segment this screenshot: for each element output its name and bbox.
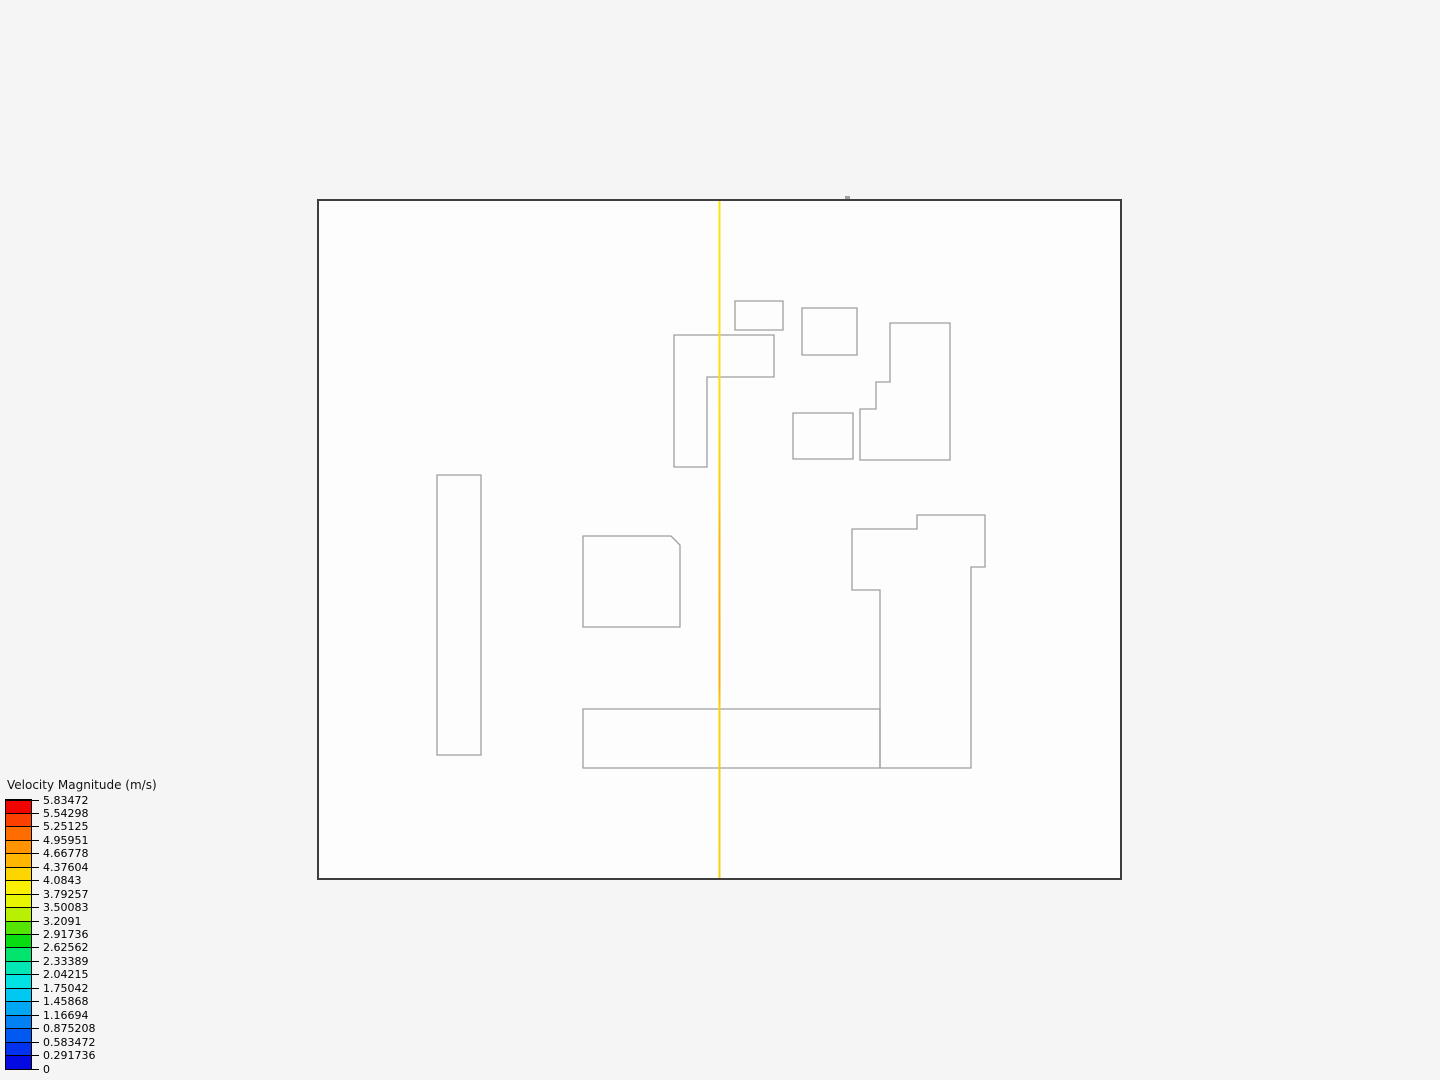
legend-tick-label: 1.45868: [43, 995, 89, 1008]
legend-tick-label: 5.25125: [43, 820, 89, 833]
legend-tick-label: 2.04215: [43, 968, 89, 981]
legend-tick-label: 4.37604: [43, 861, 89, 874]
legend-tick-mark: [6, 1001, 39, 1002]
legend-tick-mark: [6, 974, 39, 975]
legend-tick-label: 0: [43, 1063, 50, 1076]
legend-tick-label: 3.79257: [43, 888, 89, 901]
legend-tick-label: 4.95951: [43, 834, 89, 847]
legend-tick-mark: [6, 813, 39, 814]
legend-tick-label: 0.583472: [43, 1036, 96, 1049]
legend-tick-mark: [6, 1028, 39, 1029]
top-edge-notch: [845, 196, 850, 199]
legend-tick-label: 2.62562: [43, 941, 89, 954]
legend-tick-label: 5.54298: [43, 807, 89, 820]
legend-tick-label: 2.33389: [43, 955, 89, 968]
legend-tick-label: 4.0843: [43, 874, 82, 887]
legend-tick-mark: [6, 907, 39, 908]
scene-canvas[interactable]: [0, 0, 1440, 1080]
legend-tick-mark: [6, 880, 39, 881]
legend-tick-label: 1.16694: [43, 1009, 89, 1022]
legend-ticks: 5.834725.542985.251254.959514.667784.376…: [6, 800, 166, 1070]
legend-tick-mark: [6, 853, 39, 854]
legend-tick-label: 1.75042: [43, 982, 89, 995]
legend-tick-mark: [6, 988, 39, 989]
legend-title: Velocity Magnitude (m/s): [7, 778, 157, 792]
legend-tick-label: 0.875208: [43, 1022, 96, 1035]
legend-tick-label: 3.50083: [43, 901, 89, 914]
legend-tick-mark: [6, 1055, 39, 1056]
legend-tick-mark: [6, 921, 39, 922]
legend-tick-label: 5.83472: [43, 794, 89, 807]
legend-tick-label: 2.91736: [43, 928, 89, 941]
legend-tick-mark: [6, 961, 39, 962]
render-view[interactable]: Velocity Magnitude (m/s) 5.834725.542985…: [0, 0, 1440, 1080]
legend-tick-mark: [6, 1069, 39, 1070]
legend-tick-mark: [6, 1015, 39, 1016]
legend-tick-mark: [6, 800, 39, 801]
legend-tick-mark: [6, 894, 39, 895]
legend-tick-mark: [6, 826, 39, 827]
legend-tick-mark: [6, 947, 39, 948]
legend-tick-label: 3.2091: [43, 915, 82, 928]
legend-tick-mark: [6, 840, 39, 841]
scalar-bar-widget[interactable]: Velocity Magnitude (m/s) 5.834725.542985…: [6, 800, 166, 1080]
legend-tick-mark: [6, 867, 39, 868]
legend-tick-mark: [6, 934, 39, 935]
legend-tick-mark: [6, 1042, 39, 1043]
legend-tick-label: 0.291736: [43, 1049, 96, 1062]
legend-tick-label: 4.66778: [43, 847, 89, 860]
